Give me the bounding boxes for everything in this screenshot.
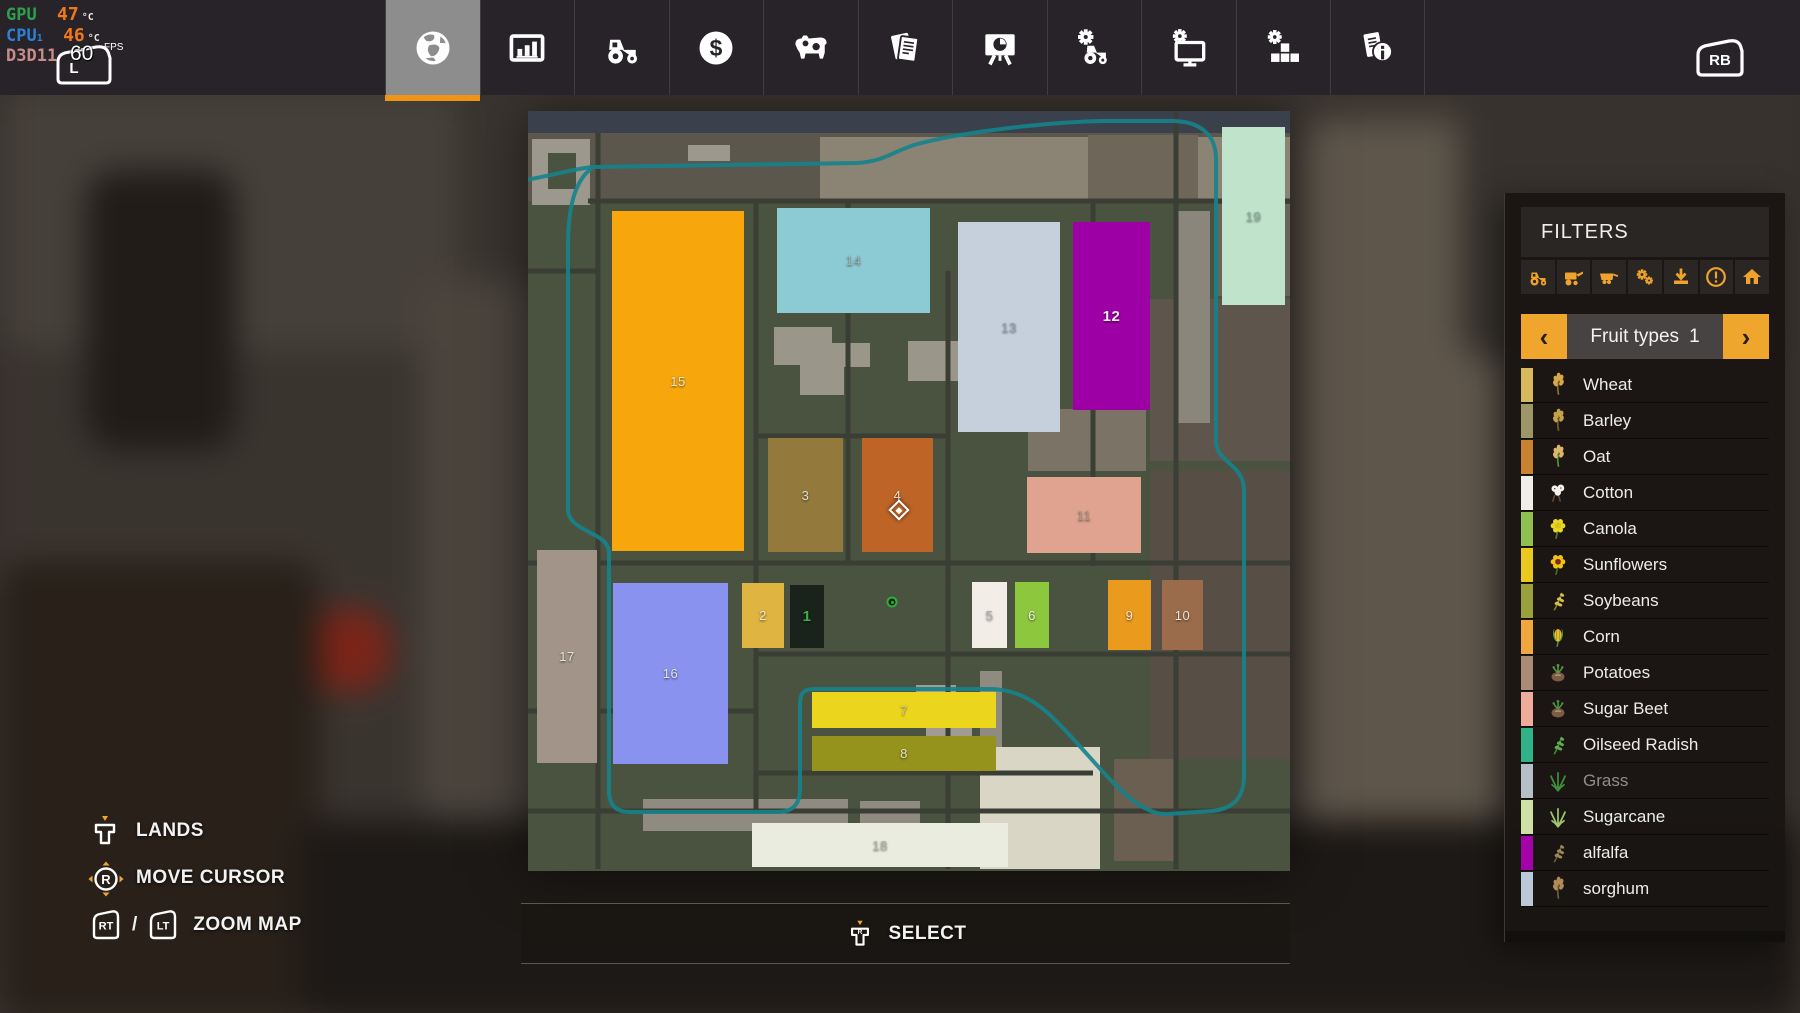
fruit-row-grass[interactable]: Grass [1521, 763, 1769, 799]
trailer-icon [1597, 265, 1621, 289]
map-field-1[interactable]: 1 [790, 585, 824, 648]
chevron-right-icon: › [1742, 324, 1751, 350]
filters-panel: FILTERS ‹ Fruit types1 › Wheat Barley [1504, 193, 1785, 942]
fruit-label: Sugarcane [1583, 807, 1665, 827]
oat-crop-icon [1545, 444, 1571, 470]
fruit-label: Oilseed Radish [1583, 735, 1698, 755]
fruit-color-swatch [1521, 368, 1533, 402]
hint-zoom-map: RT / LT ZOOM MAP [88, 907, 302, 943]
svg-text:R: R [857, 929, 862, 936]
map-field-9[interactable]: 9 [1108, 580, 1151, 650]
field-number: 12 [1103, 308, 1121, 325]
selector-prev-button[interactable]: ‹ [1521, 314, 1567, 359]
tractor-gear-icon [1072, 26, 1116, 70]
tab-garage[interactable] [1047, 0, 1142, 95]
field-number: 19 [1246, 209, 1261, 224]
fruit-label: Oat [1583, 447, 1610, 467]
fruit-row-barley[interactable]: Barley [1521, 403, 1769, 439]
field-number: 8 [900, 746, 908, 761]
corn-crop-icon [1545, 624, 1571, 650]
map-field-14[interactable]: 14 [777, 208, 930, 313]
fruit-row-wheat[interactable]: Wheat [1521, 367, 1769, 403]
production-board-icon [978, 26, 1022, 70]
map-field-15[interactable]: 15 [612, 211, 744, 551]
fruit-color-swatch [1521, 872, 1533, 906]
filter-download-icon[interactable] [1664, 260, 1698, 294]
world-map[interactable]: 15141312193411171621569107818 [528, 111, 1290, 871]
fruit-row-sunflowers[interactable]: Sunflowers [1521, 547, 1769, 583]
control-hints: LANDS R MOVE CURSOR RT / LT [88, 813, 302, 954]
download-icon [1669, 265, 1693, 289]
fruit-row-sugar-beet[interactable]: Sugar Beet [1521, 691, 1769, 727]
fruit-row-sugarcane[interactable]: Sugarcane [1521, 799, 1769, 835]
tab-mods[interactable] [1236, 0, 1331, 95]
filter-house-icon[interactable] [1735, 260, 1769, 294]
map-field-8[interactable]: 8 [812, 736, 996, 771]
field-number: 17 [559, 649, 574, 664]
fruit-color-swatch [1521, 620, 1533, 654]
fruit-color-swatch [1521, 656, 1533, 690]
fruit-row-corn[interactable]: Corn [1521, 619, 1769, 655]
info-doc-icon [1355, 26, 1399, 70]
map-field-10[interactable]: 10 [1162, 580, 1203, 650]
map-field-3[interactable]: 3 [768, 438, 843, 552]
fruit-label: Grass [1583, 771, 1628, 791]
filter-gears-icon[interactable] [1628, 260, 1662, 294]
fruit-color-swatch [1521, 764, 1533, 798]
globe-icon [411, 26, 455, 70]
filter-harvester-icon[interactable] [1557, 260, 1591, 294]
map-field-2[interactable]: 2 [742, 583, 784, 648]
field-number: 3 [802, 488, 810, 503]
fruit-label: alfalfa [1583, 843, 1628, 863]
house-icon [1740, 265, 1764, 289]
fruit-color-swatch [1521, 440, 1533, 474]
select-prompt-bar: R SELECT [521, 903, 1290, 964]
svg-text:$: $ [710, 35, 723, 61]
sugar-beet-crop-icon [1545, 696, 1571, 722]
cotton-crop-icon [1545, 480, 1571, 506]
fruit-color-swatch [1521, 800, 1533, 834]
field-number: 15 [670, 374, 685, 389]
filters-header: FILTERS [1521, 207, 1769, 257]
top-menu-bar: GPU47°C CPU146°C D3D11 L 60 FPS $ RB [0, 0, 1800, 95]
fruit-row-oilseed-radish[interactable]: Oilseed Radish [1521, 727, 1769, 763]
lt-button-icon: LT [145, 908, 181, 942]
map-field-11[interactable]: 11 [1027, 477, 1141, 553]
fruit-label: Barley [1583, 411, 1631, 431]
fps-unit: FPS [104, 42, 123, 53]
fruit-label: Wheat [1583, 375, 1632, 395]
fruit-row-sorghum[interactable]: sorghum [1521, 871, 1769, 907]
sunflowers-crop-icon [1545, 552, 1571, 578]
selector-next-button[interactable]: › [1723, 314, 1769, 359]
hint-move-cursor: R MOVE CURSOR [88, 860, 302, 896]
field-number: 6 [1028, 608, 1036, 623]
barley-crop-icon [1545, 408, 1571, 434]
fruit-color-swatch [1521, 476, 1533, 510]
fruit-color-swatch [1521, 692, 1533, 726]
fruit-label: Potatoes [1583, 663, 1650, 683]
selected-tab-underline [385, 95, 480, 101]
dpad-select-button-icon: R [845, 919, 875, 949]
filter-tractor-icon[interactable] [1521, 260, 1555, 294]
grass-crop-icon [1545, 768, 1571, 794]
fruit-label: Soybeans [1583, 591, 1659, 611]
rb-button-icon: RB [1690, 32, 1750, 78]
fruit-color-swatch [1521, 548, 1533, 582]
gpu-label: GPU [6, 5, 37, 26]
blocks-gear-icon [1261, 26, 1305, 70]
filters-title: FILTERS [1541, 221, 1629, 244]
tab-system[interactable] [1141, 0, 1236, 95]
cow-icon [789, 26, 833, 70]
map-field-13[interactable]: 13 [958, 222, 1060, 432]
svg-text:RB: RB [1709, 52, 1731, 69]
field-number: 2 [759, 608, 767, 623]
tab-help[interactable] [1330, 0, 1425, 95]
tab-contracts[interactable] [858, 0, 953, 95]
field-number: 10 [1175, 608, 1190, 623]
field-number: 18 [872, 838, 887, 853]
harvester-icon [1562, 265, 1586, 289]
map-field-6[interactable]: 6 [1015, 582, 1049, 648]
field-number: 16 [663, 666, 678, 681]
fruit-color-swatch [1521, 512, 1533, 546]
tab-vehicles[interactable] [574, 0, 669, 95]
map-field-17[interactable]: 17 [537, 550, 597, 763]
filter-category-icons [1521, 260, 1769, 294]
fruit-color-swatch [1521, 584, 1533, 618]
player-marker-icon [887, 597, 898, 608]
hint-lands: LANDS [88, 813, 302, 849]
tractor-icon [600, 26, 644, 70]
sugarcane-crop-icon [1545, 804, 1571, 830]
field-number: 9 [1126, 608, 1134, 623]
contracts-icon [883, 26, 927, 70]
chevron-left-icon: ‹ [1540, 324, 1549, 350]
menu-tabs: $ [385, 0, 1425, 95]
fruit-label: Canola [1583, 519, 1637, 539]
field-number: 11 [1077, 508, 1092, 523]
fruit-label: sorghum [1583, 879, 1649, 899]
fruit-types-list: Wheat Barley Oat CottonCanolaSunflowers … [1521, 367, 1769, 907]
fruit-row-canola[interactable]: Canola [1521, 511, 1769, 547]
select-label: SELECT [889, 923, 967, 945]
oilseed-radish-crop-icon [1545, 732, 1571, 758]
fruit-type-selector: ‹ Fruit types1 › [1521, 314, 1769, 359]
field-number: 1 [803, 608, 812, 625]
fruit-color-swatch [1521, 728, 1533, 762]
dpad-button-icon [88, 814, 124, 848]
canola-crop-icon [1545, 516, 1571, 542]
tab-map[interactable] [385, 0, 480, 95]
map-field-18[interactable]: 18 [752, 823, 1008, 867]
svg-text:RT: RT [99, 921, 114, 933]
warning-icon [1704, 265, 1728, 289]
fruit-row-cotton[interactable]: Cotton [1521, 475, 1769, 511]
filter-warning-icon[interactable] [1700, 260, 1734, 294]
fruit-row-soybeans[interactable]: Soybeans [1521, 583, 1769, 619]
tab-animals[interactable] [763, 0, 858, 95]
fruit-label: Sunflowers [1583, 555, 1667, 575]
gears-icon [1633, 265, 1657, 289]
field-number: 14 [846, 253, 861, 268]
dollar-icon: $ [694, 26, 738, 70]
map-field-4[interactable]: 4 [862, 438, 933, 552]
field-number: 5 [986, 608, 994, 623]
fruit-color-swatch [1521, 404, 1533, 438]
filter-trailer-icon[interactable] [1592, 260, 1626, 294]
svg-text:R: R [101, 872, 111, 887]
map-field-5[interactable]: 5 [972, 582, 1007, 648]
right-stick-icon: R [88, 861, 124, 895]
map-field-19[interactable]: 19 [1222, 127, 1285, 305]
monitor-gear-icon [1167, 26, 1211, 70]
soybeans-crop-icon [1545, 588, 1571, 614]
fruit-color-swatch [1521, 836, 1533, 870]
tab-production[interactable] [952, 0, 1047, 95]
gpu-temp: 47 [45, 4, 79, 25]
sorghum-crop-icon [1545, 876, 1571, 902]
wheat-crop-icon [1545, 372, 1571, 398]
fruit-row-oat[interactable]: Oat [1521, 439, 1769, 475]
fruit-label: Sugar Beet [1583, 699, 1668, 719]
field-number: 7 [900, 703, 908, 718]
selector-value: Fruit types1 [1567, 314, 1723, 359]
tab-finances[interactable]: $ [669, 0, 764, 95]
rt-button-icon: RT [88, 908, 124, 942]
map-field-16[interactable]: 16 [613, 583, 728, 764]
graphics-api-label: D3D11 [6, 46, 57, 67]
svg-text:LT: LT [157, 921, 170, 933]
tractor-icon [1526, 265, 1550, 289]
tab-statistics[interactable] [480, 0, 575, 95]
alfalfa-crop-icon [1545, 840, 1571, 866]
game-screen: 15141312193411171621569107818 GPU47°C CP… [0, 0, 1800, 1013]
map-field-7[interactable]: 7 [812, 692, 996, 728]
fruit-row-potatoes[interactable]: Potatoes [1521, 655, 1769, 691]
fruit-row-alfalfa[interactable]: alfalfa [1521, 835, 1769, 871]
fruit-label: Cotton [1583, 483, 1633, 503]
potatoes-crop-icon [1545, 660, 1571, 686]
map-field-12[interactable]: 12 [1073, 222, 1150, 410]
fruit-label: Corn [1583, 627, 1620, 647]
field-number: 13 [1001, 320, 1016, 335]
fps-value: 60 [70, 42, 93, 66]
bar-chart-icon [505, 26, 549, 70]
